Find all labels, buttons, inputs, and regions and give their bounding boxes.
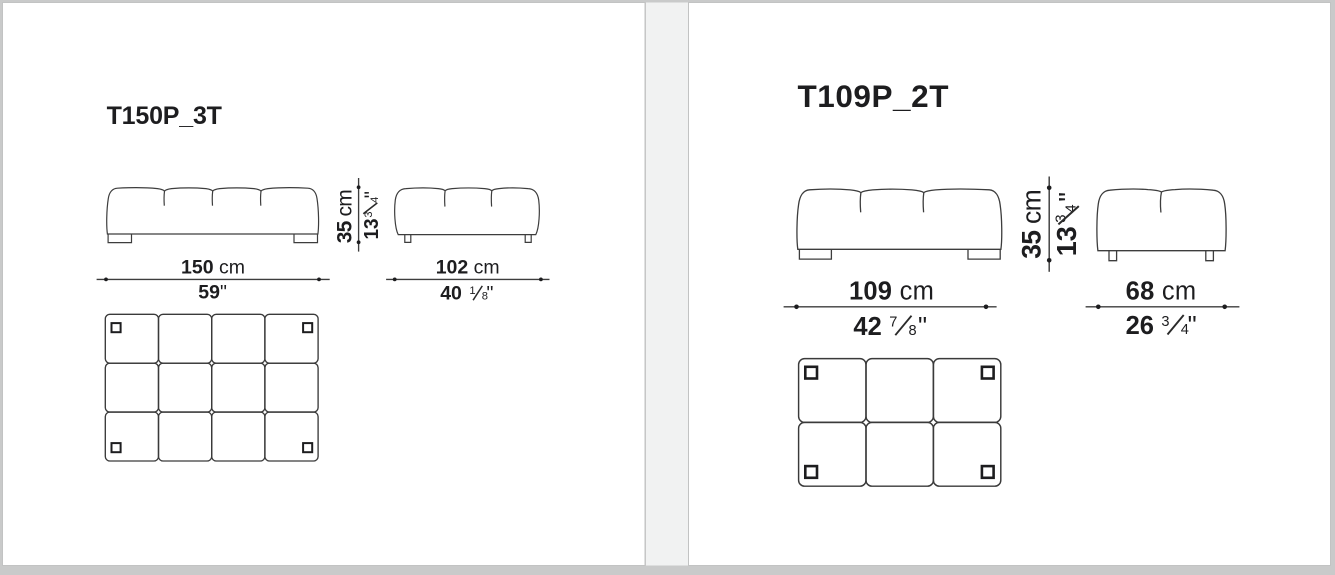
svg-text:13: 13 — [361, 219, 383, 240]
svg-text:26: 26 — [1126, 312, 1154, 340]
svg-text:3: 3 — [1161, 314, 1169, 330]
svg-text:150 cm: 150 cm — [181, 256, 245, 278]
svg-text:T109P_2T: T109P_2T — [798, 78, 950, 114]
svg-text:": " — [362, 191, 384, 198]
svg-text:": " — [1188, 312, 1197, 340]
svg-text:T150P_3T: T150P_3T — [107, 102, 222, 130]
svg-text:7: 7 — [889, 315, 897, 331]
svg-text:": " — [1053, 192, 1084, 202]
svg-text:": " — [918, 313, 927, 341]
svg-text:68 cm: 68 cm — [1126, 278, 1197, 306]
svg-text:35 cm: 35 cm — [333, 189, 356, 243]
svg-text:35 cm: 35 cm — [1017, 189, 1047, 259]
svg-text:13: 13 — [1051, 226, 1082, 256]
svg-text:": " — [487, 283, 494, 305]
svg-text:42: 42 — [853, 313, 881, 341]
svg-text:1: 1 — [469, 285, 475, 297]
svg-text:40: 40 — [440, 283, 462, 305]
svg-text:59": 59" — [198, 282, 227, 304]
svg-text:8: 8 — [909, 323, 917, 339]
svg-text:102 cm: 102 cm — [436, 257, 500, 279]
svg-text:109 cm: 109 cm — [849, 278, 934, 306]
